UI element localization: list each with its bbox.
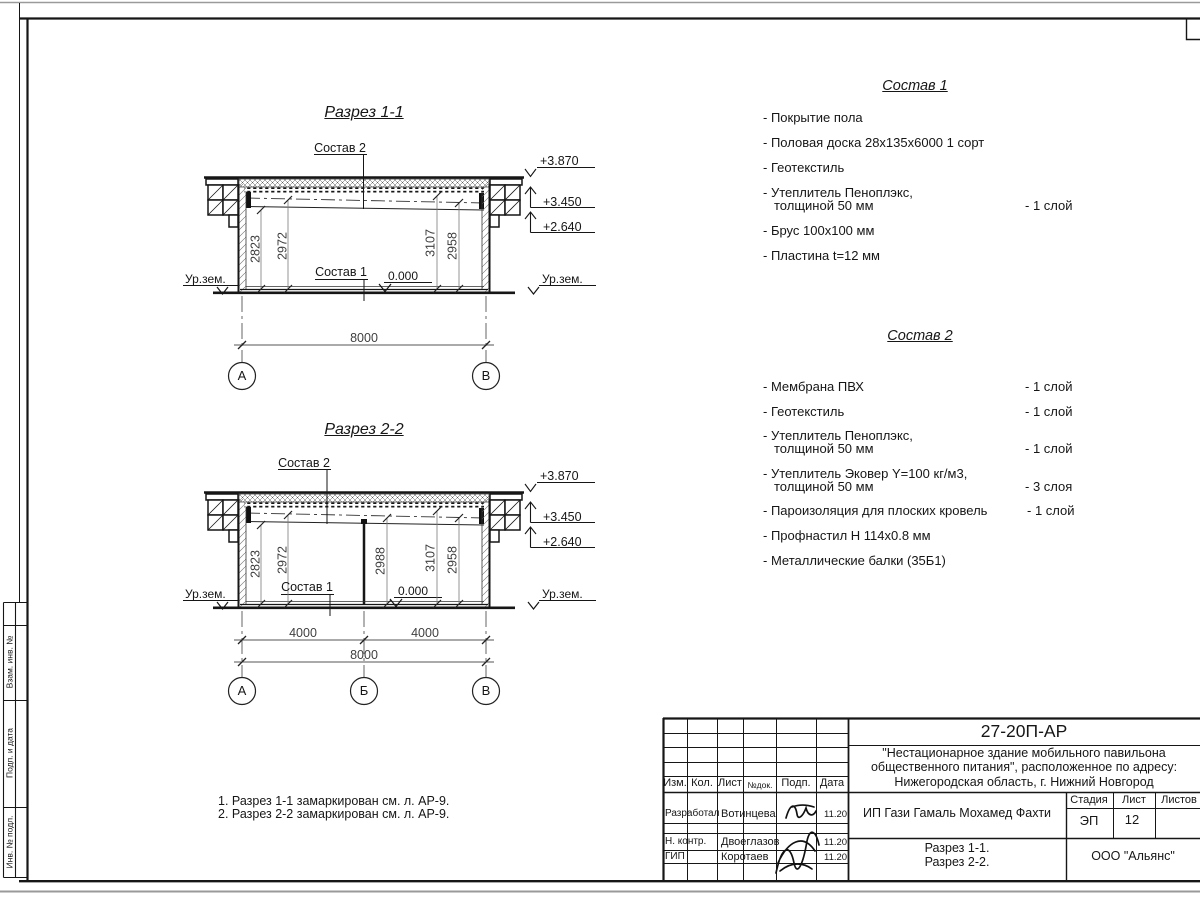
s22-dim-2988: 2988 <box>374 547 388 575</box>
sostav2-item-line2: толщиной 50 мм <box>774 480 874 494</box>
sostav1-item: - Геотекстиль <box>763 161 844 175</box>
signatures <box>776 805 819 873</box>
row-date: 11.20 <box>824 853 847 863</box>
sostav1-item: - Пластина t=12 мм <box>763 249 880 263</box>
s22-bracket-right <box>490 494 522 542</box>
signature-votintseva <box>786 805 816 818</box>
s11-elev-2640: +2.640 <box>543 221 582 235</box>
s22-bracket-left <box>206 494 238 542</box>
project-name-line1: "Нестационарное здание мобильного павиль… <box>882 747 1165 761</box>
s22-elev-3870: +3.870 <box>540 470 579 484</box>
s22-sostav1-label: Состав 1 <box>281 581 333 595</box>
s11-zero-level: 0.000 <box>388 270 418 283</box>
s11-axis-label-a: А <box>238 369 247 383</box>
doc-code: 27-20П-АР <box>981 722 1068 741</box>
sostav2-item-qty: - 1 слой <box>1025 442 1073 456</box>
sostav2-item-qty: - 1 слой <box>1027 504 1075 518</box>
row-date: 11.20 <box>824 838 847 848</box>
project-name-line2: общественного питания", расположенное по… <box>871 761 1177 775</box>
sostav2-item: - Металлические балки (35Б1) <box>763 554 946 568</box>
sostav2-item-qty: - 1 слой <box>1025 405 1073 419</box>
s11-axis-label-v: В <box>482 369 491 383</box>
sostav1-item: - Половая доска 28х135х6000 1 сорт <box>763 136 984 150</box>
project-name-line3: Нижегородская область, г. Нижний Новгоро… <box>894 776 1153 790</box>
section-2-2-title: Разрез 2-2 <box>324 421 403 438</box>
row-name: Коротаев <box>721 852 769 864</box>
sostav2-item: - Профнастил Н 114х0.8 мм <box>763 529 931 543</box>
stage-value: ЭП <box>1080 814 1099 828</box>
s11-ground-label-left: Ур.зем. <box>185 273 226 286</box>
sheet-title-line1: Разрез 1-1. <box>925 842 990 856</box>
sostav2-item-line2: толщиной 50 мм <box>774 442 874 456</box>
s22-axis-label-v: В <box>482 684 491 698</box>
s22-dim-2958: 2958 <box>446 546 460 574</box>
sostav2-item: - Геотекстиль <box>763 405 844 419</box>
s22-dim-4000-left: 4000 <box>289 627 317 641</box>
row-role: ГИП <box>665 852 685 863</box>
row-role: Н. контр. <box>665 837 706 848</box>
s22-ground-label-right: Ур.зем. <box>542 588 583 601</box>
s11-elev-3870: +3.870 <box>540 155 579 169</box>
row-name: Вотинцева <box>721 809 776 821</box>
s11-dim-2958: 2958 <box>446 232 460 260</box>
sostav1-item: - Покрытие пола <box>763 111 863 125</box>
col-list: Лист <box>718 778 742 790</box>
row-date: 11.20 <box>824 810 847 820</box>
drawing-sheet: Разрез 1-1 Состав 2 Состав 1 0.000 Ур.зе… <box>0 0 1200 900</box>
s22-middle-wall-head <box>361 519 367 524</box>
stage-label: Стадия <box>1070 795 1108 807</box>
s22-dim-4000-right: 4000 <box>411 627 439 641</box>
s22-zero-level: 0.000 <box>398 585 428 598</box>
s22-elev-3450: +3.450 <box>543 511 582 525</box>
s22-elev-2640: +2.640 <box>543 536 582 550</box>
sostav2-item: - Пароизоляция для плоских кровель <box>763 504 987 518</box>
format-box <box>1187 19 1200 40</box>
sostav1-item-line2: толщиной 50 мм <box>774 199 874 213</box>
sostav1-item: - Брус 100х100 мм <box>763 224 874 238</box>
side-stamp-podp: Подп. и дата <box>5 728 14 778</box>
s11-dim-2823: 2823 <box>249 235 263 263</box>
sostav2-item-qty: - 1 слой <box>1025 380 1073 394</box>
row-name: Двоеглазов <box>721 837 779 849</box>
sostav1-heading: Состав 1 <box>882 79 947 95</box>
s11-dim-3107: 3107 <box>424 229 438 257</box>
section-2-2-drawing <box>183 470 596 705</box>
col-izm: Изм. <box>663 778 687 790</box>
side-stamp-inv: Инв. № подл. <box>5 816 14 869</box>
note-2: 2. Разрез 2-2 замаркирован см. л. АР-9. <box>218 808 449 822</box>
s22-dim-2823: 2823 <box>249 550 263 578</box>
s22-dim-3107: 3107 <box>424 544 438 572</box>
col-doc: №док. <box>748 781 773 790</box>
section-1-1-title: Разрез 1-1 <box>324 104 403 121</box>
s11-elev-3450: +3.450 <box>543 196 582 210</box>
s22-axis-label-b: Б <box>360 684 369 698</box>
s11-bracket-right <box>490 179 522 227</box>
s11-sostav1-label: Состав 1 <box>315 266 367 280</box>
sheet-title-line2: Разрез 2-2. <box>925 856 990 870</box>
company-name: ООО "Альянс" <box>1091 850 1175 864</box>
sheet-number: 12 <box>1125 813 1139 827</box>
col-data: Дата <box>820 778 844 790</box>
s11-sostav2-label: Состав 2 <box>314 142 366 156</box>
s11-dim-8000: 8000 <box>350 332 378 346</box>
s22-sostav2-label: Состав 2 <box>278 457 330 471</box>
signature-dvoeglazov-gip <box>776 832 819 873</box>
client-name: ИП Гази Гамаль Мохамед Фахти <box>863 807 1051 821</box>
sheet-label: Лист <box>1122 795 1146 807</box>
sheets-label: Листов <box>1161 795 1197 807</box>
sostav1-item-qty: - 1 слой <box>1025 199 1073 213</box>
side-stamp-vzam: Взам. инв. № <box>5 636 14 689</box>
s22-dim-2972: 2972 <box>276 546 290 574</box>
s11-dim-2972: 2972 <box>276 232 290 260</box>
row-role: Разработал <box>665 809 719 820</box>
s11-ground-label-right: Ур.зем. <box>542 273 583 286</box>
sostav2-item: - Мембрана ПВХ <box>763 380 864 394</box>
sostav2-heading: Состав 2 <box>887 329 952 345</box>
s22-ground-label-left: Ур.зем. <box>185 588 226 601</box>
col-podp: Подп. <box>781 778 810 790</box>
col-kol: Кол. <box>691 778 713 790</box>
s22-dim-8000: 8000 <box>350 649 378 663</box>
sostav2-item-qty: - 3 слоя <box>1025 480 1072 494</box>
s22-axis-label-a: А <box>238 684 247 698</box>
s11-bracket-left <box>206 179 238 227</box>
